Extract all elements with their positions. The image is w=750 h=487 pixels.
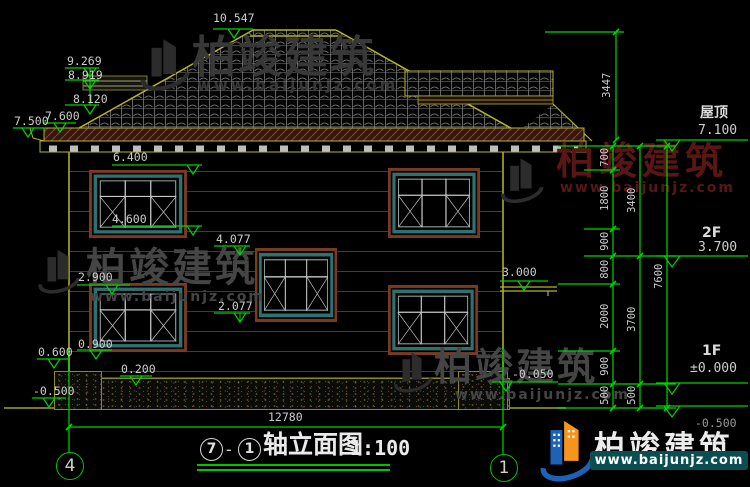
dim-value: 500: [600, 375, 611, 415]
dim-value: 7600: [654, 256, 665, 296]
elevation-value: 7.500: [14, 116, 49, 128]
dim-value: 700: [600, 137, 611, 177]
elevation-value: 3.000: [502, 267, 537, 279]
watermark-url: www.baijunjz.com: [197, 78, 398, 93]
dim-value: 3400: [627, 180, 638, 220]
elevation-value: 9.269: [67, 56, 102, 68]
title-underline: [197, 469, 390, 471]
title-underline: [197, 464, 390, 466]
watermark-logo-icon: [36, 244, 82, 299]
roof-level-label: 屋顶: [700, 106, 728, 120]
elevation-value: 7.600: [45, 111, 80, 123]
cad-elevation-drawing: 柏竣建筑 www.baijunjz.com 柏竣建筑 www.baijunjz.…: [0, 0, 750, 487]
elevation-value: -0.050: [512, 369, 554, 381]
elevation-value: 2.077: [218, 301, 253, 313]
elevation-value: 10.547: [213, 13, 255, 25]
axis-bubble-left: 4: [56, 452, 84, 480]
roof-wing-band: [405, 71, 553, 96]
watermark-brand: 柏竣建筑: [556, 142, 728, 180]
dim-value: 800: [600, 249, 611, 289]
axis-bubble-right: 1: [490, 454, 518, 482]
window-stair-center: [255, 248, 337, 322]
watermark-url: www.baijunjz.com: [560, 181, 735, 195]
dim-value: 1800: [600, 178, 611, 218]
elevation-value: -0.500: [33, 386, 75, 398]
window-2f-left: [89, 170, 187, 238]
elevation-value: 8.120: [73, 94, 108, 106]
roof-wing-slope: [505, 104, 592, 141]
elevation-value: 8.919: [68, 70, 103, 82]
watermark-logo-icon: [392, 348, 434, 397]
brand-logo-url: www.baijunjz.com: [590, 451, 748, 470]
elevation-value: 0.900: [78, 339, 113, 351]
elevation-value: 6.400: [113, 152, 148, 164]
side-canopy: [500, 287, 557, 296]
watermark-brand: 柏竣建筑: [192, 36, 376, 80]
watermark-logo-icon: [138, 34, 192, 95]
floor2-value: 3.700: [698, 241, 737, 254]
eave-hatch-band: [44, 128, 584, 141]
floor2-label: 2F: [702, 226, 721, 240]
dim-value: 12780: [268, 412, 303, 424]
dim-value: 3700: [627, 299, 638, 339]
title-dash: -: [224, 442, 234, 458]
title-axis-to: 1: [238, 438, 261, 461]
elevation-value: 4.600: [112, 214, 147, 226]
drawing-scale: 1:100: [350, 438, 410, 458]
dim-value: 3447: [602, 65, 613, 105]
watermark-logo-icon: [494, 154, 550, 207]
elevation-value: 2.900: [78, 272, 113, 284]
brand-logo-icon: [536, 416, 594, 487]
elevation-value: 4.077: [216, 234, 251, 246]
eave-left-tip: [30, 128, 44, 141]
elevation-value: 0.200: [121, 364, 156, 376]
drawing-title: 轴立面图: [263, 432, 363, 457]
window-2f-right: [388, 168, 480, 238]
elevation-value: 0.600: [38, 347, 73, 359]
dim-value: 500: [627, 375, 638, 415]
floor1-label: 1F: [702, 344, 721, 358]
title-axis-from: 7: [200, 438, 223, 461]
dim-value: 2000: [600, 296, 611, 336]
floor1-value: ±0.000: [690, 362, 737, 375]
roof-level-value: 7.100: [698, 124, 737, 137]
